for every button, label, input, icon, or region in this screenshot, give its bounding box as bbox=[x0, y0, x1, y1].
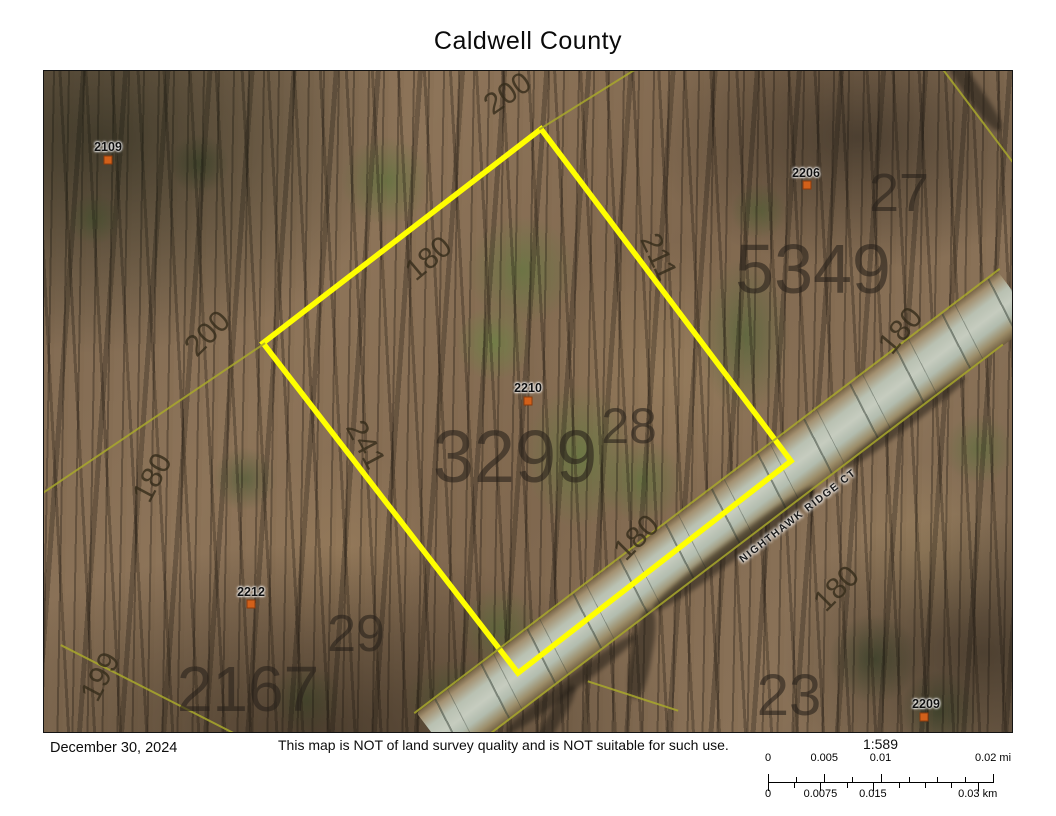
parcel-point-label: 2210 bbox=[514, 381, 542, 395]
parcel-number-large: 29 bbox=[327, 608, 385, 660]
scale-tick bbox=[978, 782, 979, 791]
scale-tick bbox=[881, 774, 882, 783]
dimension-label: 180 bbox=[809, 561, 866, 618]
parcel-number-large: 27 bbox=[869, 166, 929, 220]
parcel-number-large: 2167 bbox=[177, 657, 319, 721]
scale-tick bbox=[909, 777, 910, 783]
scale-tick bbox=[899, 782, 900, 788]
parcel-number-large: 3299 bbox=[433, 420, 598, 494]
parcel-marker-icon bbox=[104, 156, 113, 165]
parcel-point-label: 2209 bbox=[912, 697, 940, 711]
scale-tick bbox=[993, 774, 994, 783]
parcel-marker-icon bbox=[803, 181, 812, 190]
parcel-number-large: 23 bbox=[757, 667, 822, 725]
parcel-number-large: 28 bbox=[601, 401, 657, 451]
scale-bar: 1:589 00.0050.010.02 mi00.00750.0150.03 … bbox=[768, 736, 1028, 808]
road bbox=[417, 272, 1013, 733]
parcel-marker-icon bbox=[920, 713, 929, 722]
scale-tick bbox=[852, 777, 853, 783]
scale-tick bbox=[794, 782, 795, 788]
scale-tick bbox=[820, 782, 821, 791]
scale-tick bbox=[873, 782, 874, 791]
dimension-label: 180 bbox=[400, 231, 458, 286]
scale-tick bbox=[951, 782, 952, 788]
scale-ratio: 1:589 bbox=[768, 736, 993, 752]
scale-tick-label: 0 bbox=[765, 752, 771, 764]
scale-tick bbox=[824, 774, 825, 783]
map-canvas: NIGHTHAWK RIDGE CT 210922062210221222092… bbox=[43, 70, 1013, 733]
disclaimer-text: This map is NOT of land survey quality a… bbox=[278, 737, 729, 753]
page-root: { "title": "Caldwell County", "map": { "… bbox=[0, 0, 1056, 816]
scale-tick bbox=[768, 782, 769, 791]
scale-tick-label: 0.01 bbox=[870, 752, 891, 764]
dimension-label: 211 bbox=[634, 229, 681, 285]
scale-tick bbox=[937, 777, 938, 783]
dimension-label: 180 bbox=[128, 449, 178, 507]
dimension-label: 241 bbox=[340, 416, 390, 474]
scale-tick-label: 0.005 bbox=[810, 752, 838, 764]
scale-tick bbox=[965, 777, 966, 783]
parcel-boundary-line bbox=[539, 70, 638, 130]
parcel-point-label: 2212 bbox=[237, 585, 265, 599]
scale-tick bbox=[847, 782, 848, 788]
parcel-marker-icon bbox=[524, 397, 533, 406]
map-date: December 30, 2024 bbox=[50, 740, 177, 756]
parcel-number-large: 5349 bbox=[735, 234, 891, 304]
dimension-label: 200 bbox=[479, 70, 537, 121]
page-title: Caldwell County bbox=[0, 27, 1056, 56]
parcel-marker-icon bbox=[247, 600, 256, 609]
parcel-point-label: 2109 bbox=[94, 140, 122, 154]
scale-tick bbox=[925, 782, 926, 788]
scale-tick-label: 0.02 mi bbox=[975, 752, 1011, 764]
dimension-label: 200 bbox=[180, 306, 237, 363]
scale-tick bbox=[796, 777, 797, 783]
parcel-point-label: 2206 bbox=[792, 166, 820, 180]
